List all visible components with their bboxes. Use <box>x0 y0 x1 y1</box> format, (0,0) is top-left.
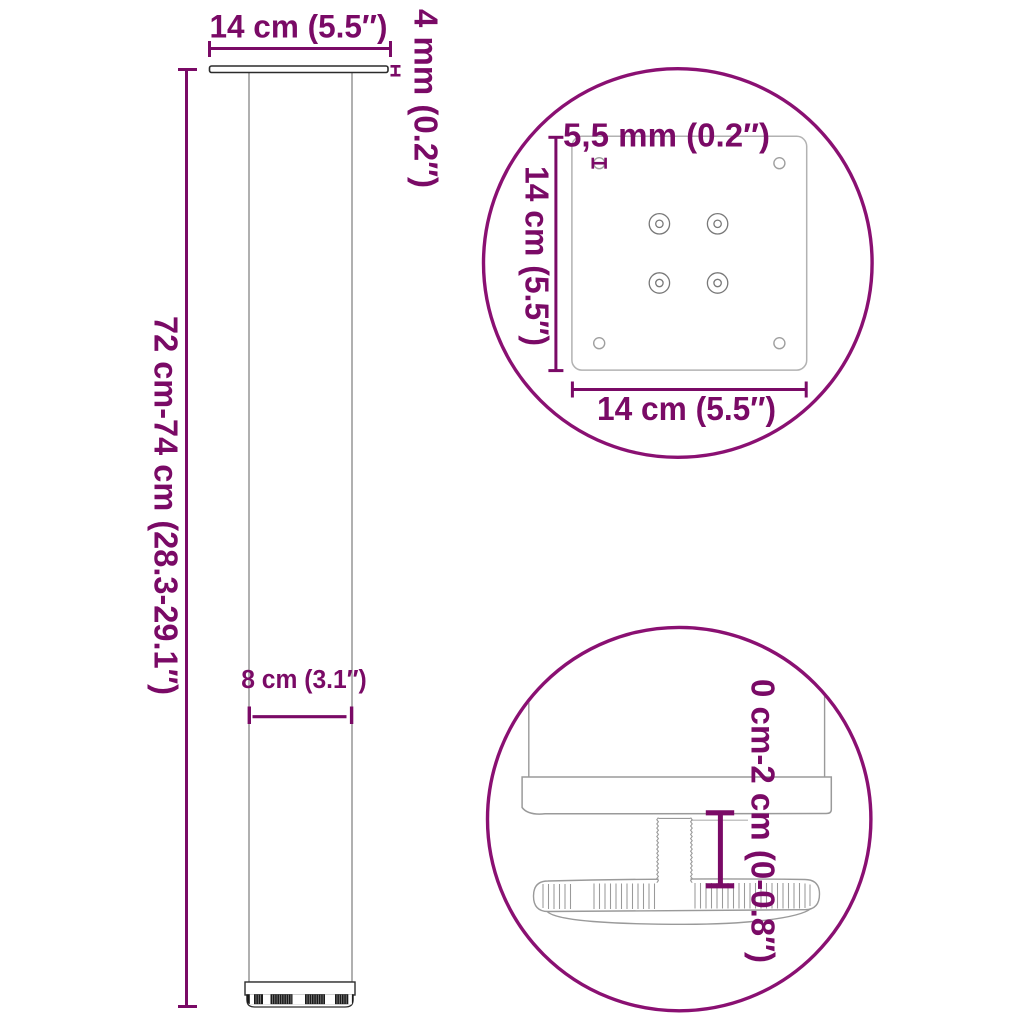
svg-text:4 mm (0.2″): 4 mm (0.2″) <box>408 9 445 188</box>
svg-text:5,5 mm (0.2″): 5,5 mm (0.2″) <box>563 117 770 154</box>
svg-text:0 cm-2 cm (0-0.8″): 0 cm-2 cm (0-0.8″) <box>745 679 782 963</box>
svg-text:8 cm (3.1″): 8 cm (3.1″) <box>241 666 367 694</box>
svg-text:14 cm (5.5″): 14 cm (5.5″) <box>519 166 556 346</box>
svg-text:72 cm-74 cm (28.3-29.1″): 72 cm-74 cm (28.3-29.1″) <box>148 316 185 695</box>
svg-text:14 cm (5.5″): 14 cm (5.5″) <box>210 9 388 45</box>
svg-text:14 cm (5.5″): 14 cm (5.5″) <box>597 390 776 427</box>
